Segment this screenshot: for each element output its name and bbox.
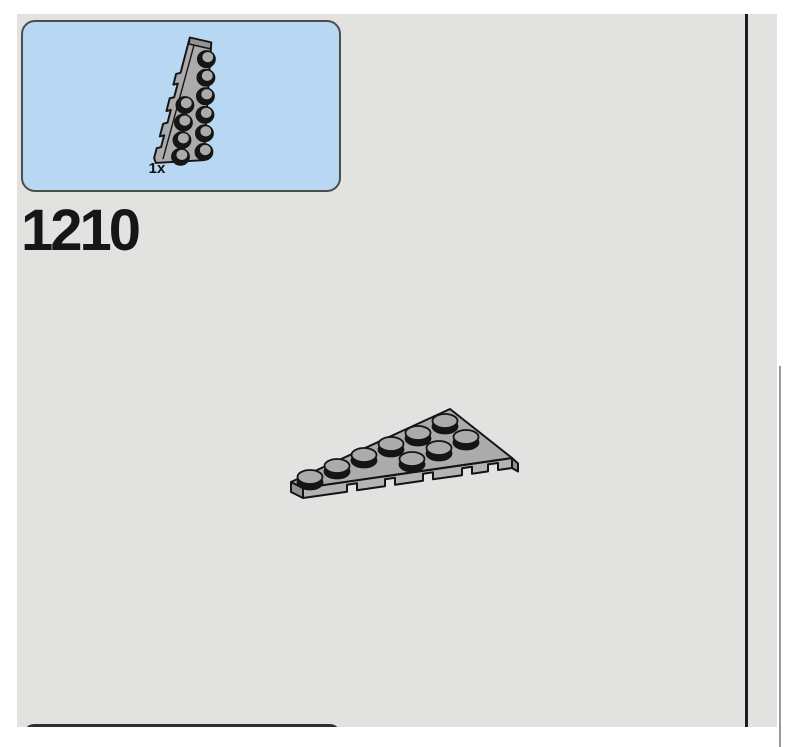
page-edge-line xyxy=(779,366,781,747)
step-number: 1210 xyxy=(21,202,138,260)
page-surface: 1x 1210 xyxy=(17,14,777,727)
instruction-page: 1x 1210 xyxy=(0,0,796,747)
page-divider-line xyxy=(745,14,748,727)
part-quantity-label: 1x xyxy=(127,160,187,177)
parts-callout-box: 1x xyxy=(21,20,341,192)
next-step-box-top xyxy=(24,724,340,727)
